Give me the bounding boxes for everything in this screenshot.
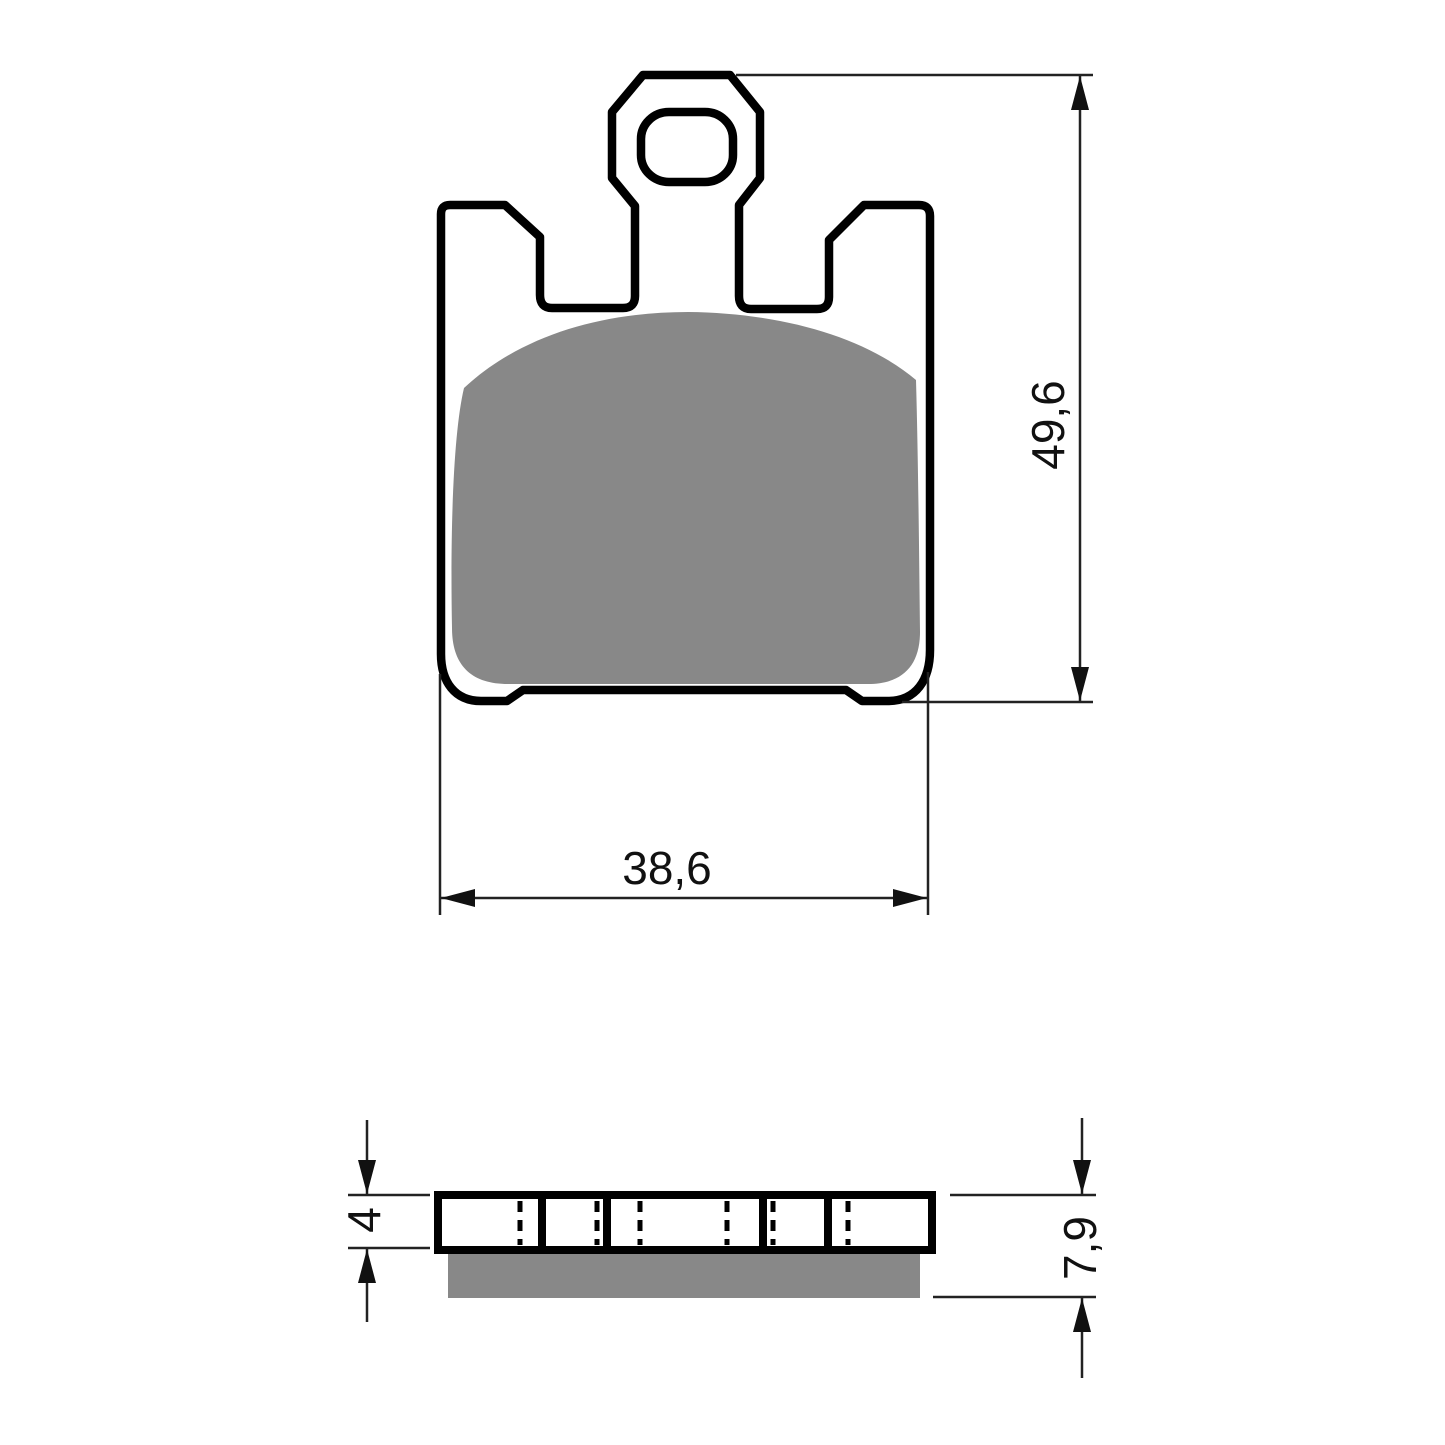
plate-arrowhead-down [358,1160,376,1194]
height-arrowhead-bottom [1071,667,1089,701]
backplate-side [438,1195,932,1250]
total-thickness-label: 7,9 [1054,1216,1106,1280]
total-thickness-dimension: 7,9 [933,1118,1106,1378]
mounting-hole [641,112,733,182]
plate-arrowhead-up [358,1249,376,1283]
friction-material-front [452,312,921,684]
backplate-thickness-dimension: 4 [338,1120,430,1322]
width-arrowhead-right [893,889,927,907]
height-dim-label: 49,6 [1022,380,1074,470]
friction-material-side [448,1250,920,1298]
width-dim-label: 38,6 [622,842,712,894]
side-view [438,1195,932,1298]
plate-thickness-label: 4 [338,1207,390,1233]
front-view [441,75,930,701]
height-arrowhead-top [1071,76,1089,110]
width-arrowhead-left [441,889,475,907]
total-arrowhead-up [1073,1298,1091,1332]
total-arrowhead-down [1073,1160,1091,1194]
width-dimension: 38,6 [440,672,928,915]
drawing-svg: 49,6 38,6 4 [0,0,1445,1445]
brake-pad-technical-drawing: 49,6 38,6 4 [0,0,1445,1445]
